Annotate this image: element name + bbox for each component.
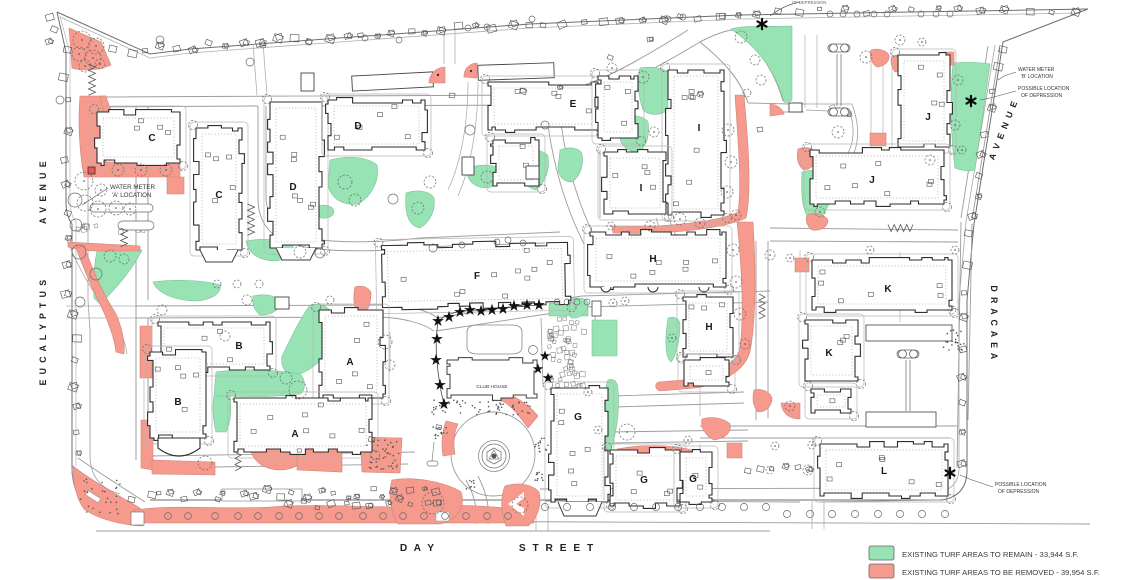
- svg-text:C: C: [215, 190, 222, 201]
- svg-text:L: L: [881, 466, 887, 477]
- svg-text:D R A C A E A: D R A C A E A: [989, 285, 999, 360]
- svg-text:WATER METER: WATER METER: [110, 184, 156, 191]
- svg-text:J: J: [869, 175, 875, 186]
- svg-text:S T R E E T: S T R E E T: [519, 543, 595, 554]
- svg-text:G: G: [574, 412, 582, 423]
- svg-text:A: A: [291, 429, 298, 440]
- svg-text:K: K: [825, 348, 833, 359]
- svg-text:K: K: [884, 284, 892, 295]
- svg-text:I: I: [640, 183, 643, 194]
- svg-text:'B' LOCATION: 'B' LOCATION: [1021, 74, 1053, 80]
- svg-text:B: B: [174, 397, 181, 408]
- svg-text:J: J: [925, 112, 931, 123]
- svg-text:'A' LOCATION: 'A' LOCATION: [112, 192, 151, 199]
- svg-text:D: D: [289, 182, 296, 193]
- svg-text:H: H: [705, 322, 712, 333]
- svg-text:POSSIBLE LOCATION: POSSIBLE LOCATION: [995, 482, 1047, 488]
- svg-text:OF DEPRESSION: OF DEPRESSION: [792, 0, 826, 5]
- svg-text:D A Y: D A Y: [400, 543, 436, 554]
- svg-text:C: C: [148, 133, 155, 144]
- svg-text:E U C A L Y P T U S: E U C A L Y P T U S: [38, 279, 48, 386]
- svg-text:A V E N U E: A V E N U E: [38, 160, 48, 224]
- svg-text:G: G: [689, 474, 697, 485]
- svg-text:WATER METER: WATER METER: [1018, 67, 1055, 73]
- svg-text:EXISTING TURF AREAS TO REMAIN: EXISTING TURF AREAS TO REMAIN - 33,944 S…: [902, 550, 1078, 559]
- svg-text:CLUB HOUSE: CLUB HOUSE: [476, 384, 507, 390]
- svg-text:D: D: [354, 121, 361, 132]
- svg-text:F: F: [474, 271, 480, 282]
- svg-text:H: H: [649, 254, 656, 265]
- svg-text:POSSIBLE LOCATION: POSSIBLE LOCATION: [1018, 86, 1070, 92]
- svg-text:OF DEPRESSION: OF DEPRESSION: [998, 489, 1040, 495]
- svg-text:I: I: [698, 123, 701, 134]
- svg-text:A: A: [346, 357, 353, 368]
- svg-text:B: B: [235, 341, 242, 352]
- svg-text:EXISTING TURF AREAS TO BE REMO: EXISTING TURF AREAS TO BE REMOVED - 39,9…: [902, 568, 1100, 577]
- svg-text:G: G: [640, 475, 648, 486]
- svg-text:OF DEPRESSION: OF DEPRESSION: [1021, 93, 1063, 99]
- svg-text:E: E: [570, 99, 577, 110]
